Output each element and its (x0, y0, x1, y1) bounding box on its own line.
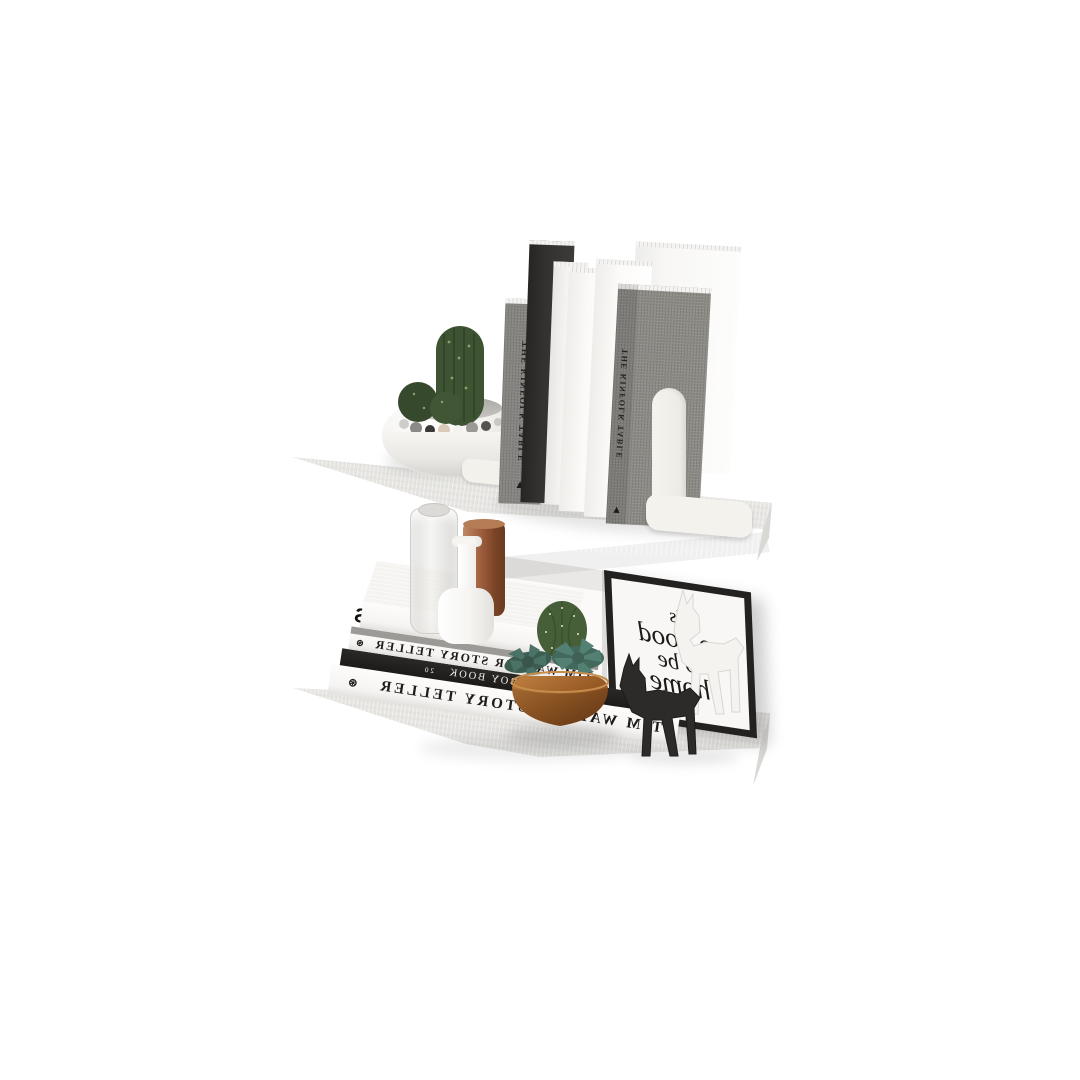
book-kinfolk-2-title: THE KINFOLK TABLE (615, 349, 630, 460)
succulent-bowl (500, 596, 620, 744)
black-deer-figurine (606, 650, 711, 764)
copper-vase-top (463, 519, 505, 529)
book-tim-walker-2-logo: ⊛ (344, 676, 358, 690)
top-shelf-front-edge (0, 0, 1080, 1080)
book-pages-edge (529, 240, 574, 246)
product-photo-stage: It's so good to be home (0, 0, 1080, 1080)
book-playboy-edition: 20 (422, 665, 434, 675)
kinfolk-logo-triangle: ▲ (613, 505, 620, 514)
book-pages-edge (636, 241, 742, 252)
book-tim-walker-1-logo: ⊛ (353, 637, 364, 648)
glass-bottle-rim (418, 503, 450, 517)
white-bottle-body (438, 588, 494, 644)
